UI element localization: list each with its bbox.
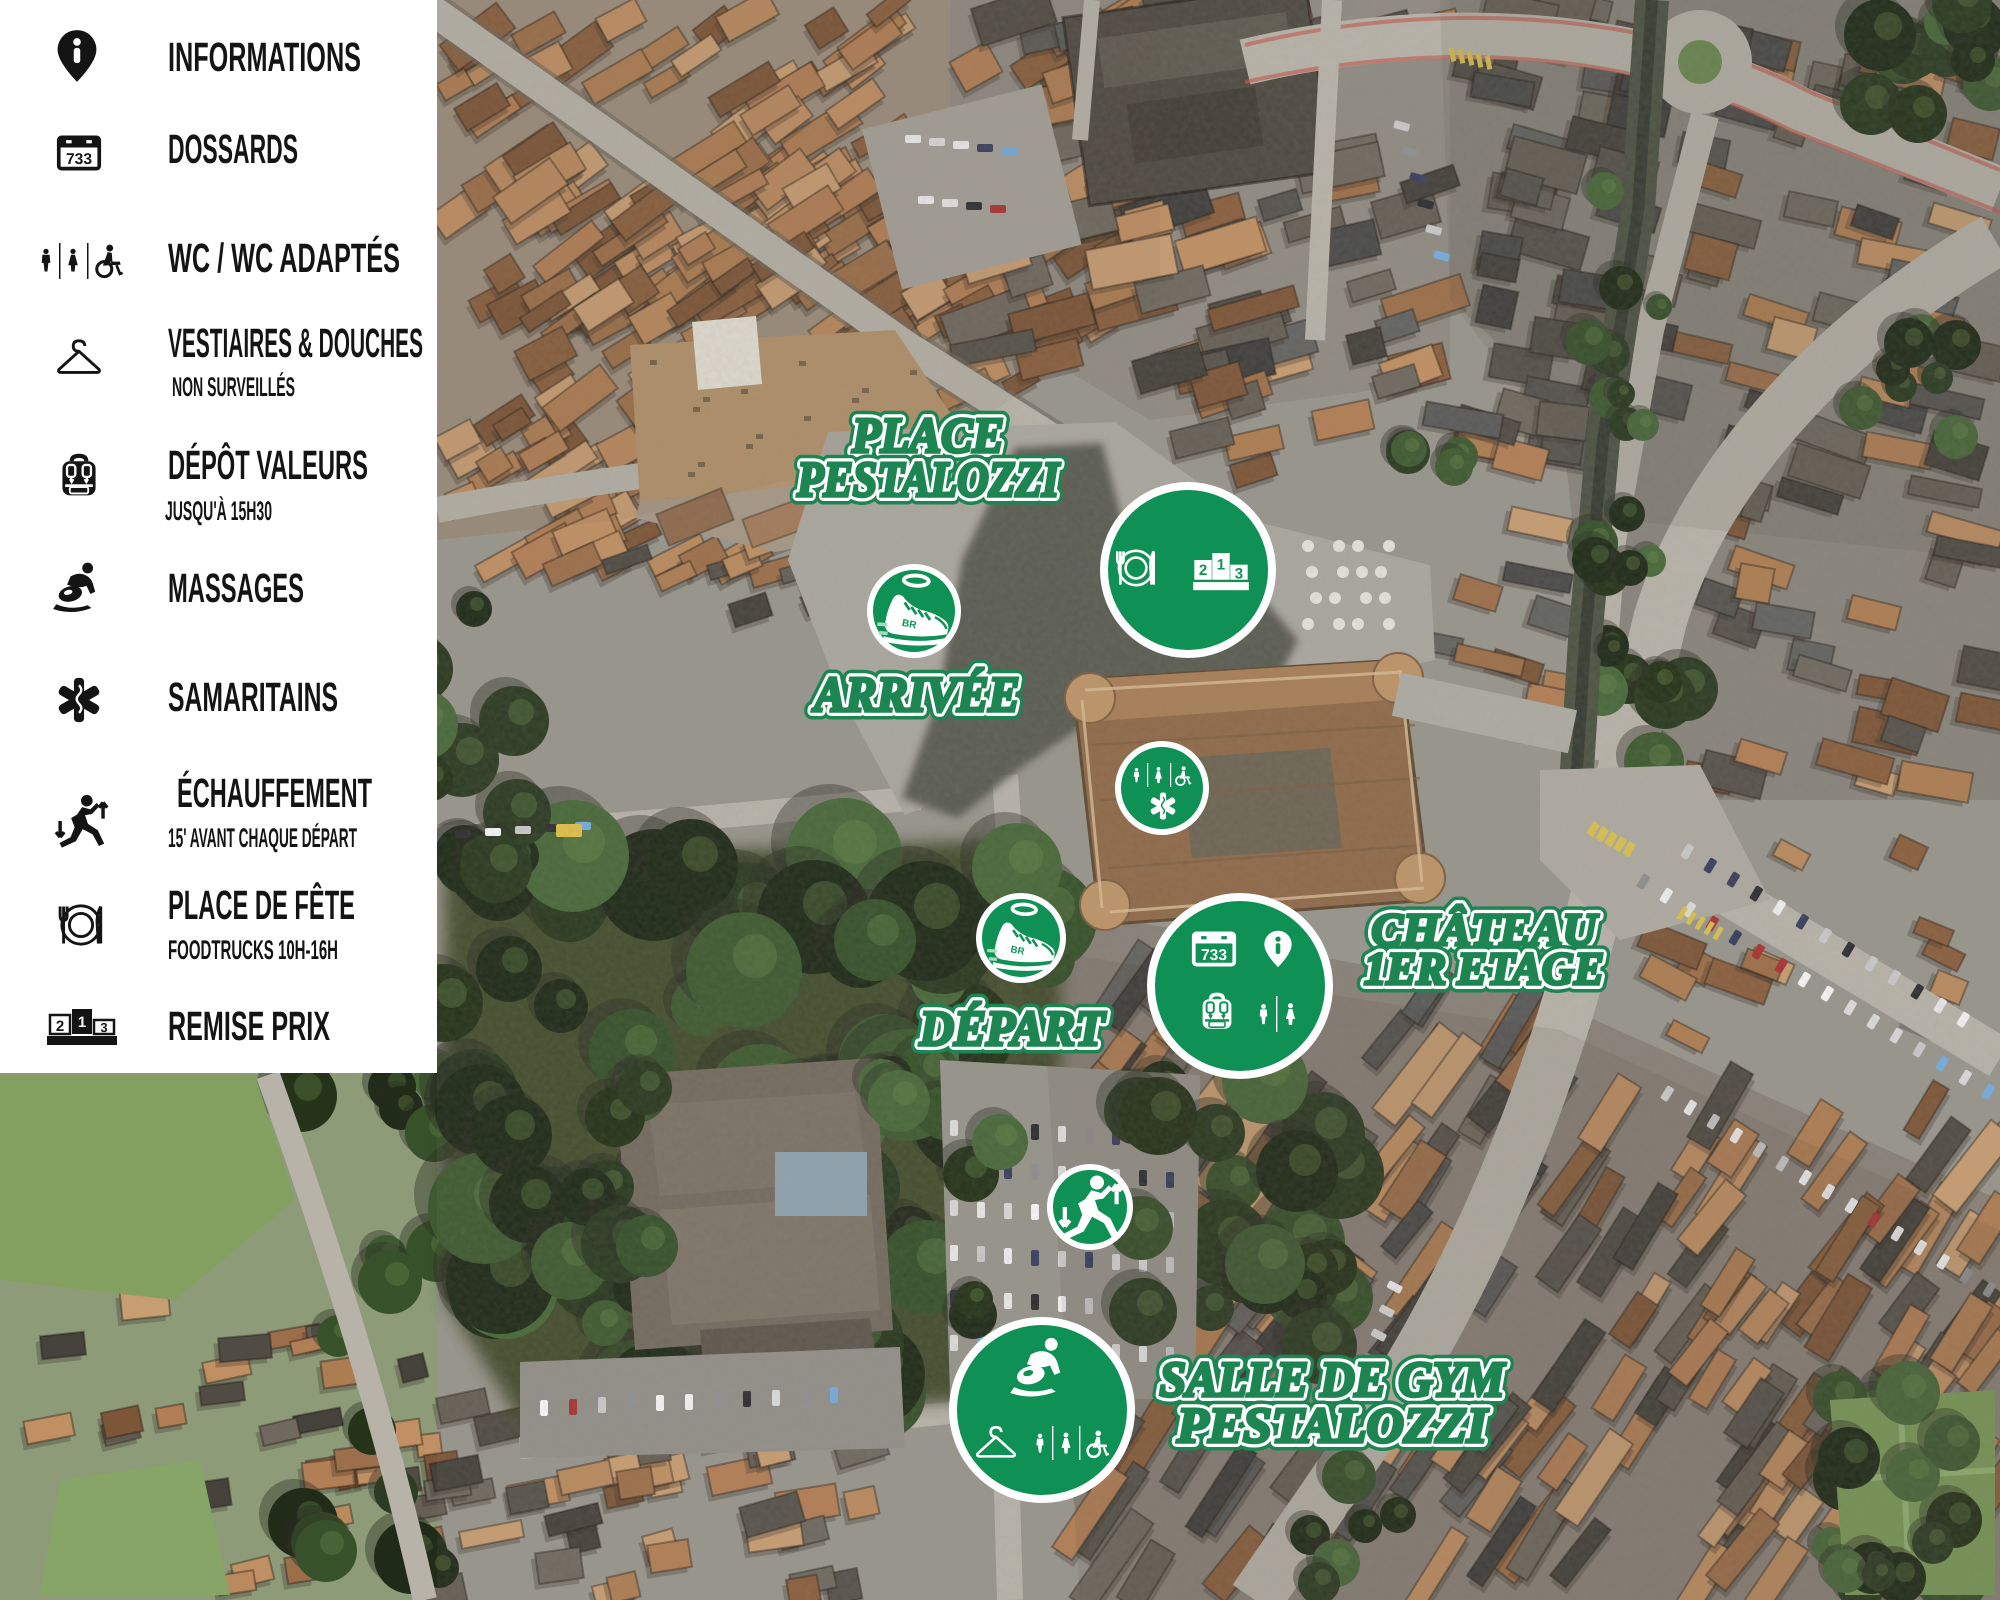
svg-text:VESTIAIRES & DOUCHES: VESTIAIRES & DOUCHES xyxy=(168,320,423,366)
svg-text:15' AVANT CHAQUE DÉPART: 15' AVANT CHAQUE DÉPART xyxy=(168,823,357,853)
svg-text:WC / WC ADAPTÉS: WC / WC ADAPTÉS xyxy=(168,235,400,281)
svg-text:ARRIVÉE: ARRIVÉE xyxy=(812,666,1020,722)
svg-text:DOSSARDS: DOSSARDS xyxy=(168,126,298,172)
svg-text:MASSAGES: MASSAGES xyxy=(168,565,304,611)
svg-text:REMISE PRIX: REMISE PRIX xyxy=(168,1003,330,1049)
svg-text:1: 1 xyxy=(78,1014,86,1031)
svg-text:2: 2 xyxy=(56,1018,64,1035)
svg-text:1ER ETAGE: 1ER ETAGE xyxy=(1364,943,1604,994)
svg-text:SAMARITAINS: SAMARITAINS xyxy=(168,674,338,720)
svg-text:PESTALOZZI: PESTALOZZI xyxy=(796,451,1060,507)
svg-text:INFORMATIONS: INFORMATIONS xyxy=(168,34,361,80)
svg-text:PLACE DE FÊTE: PLACE DE FÊTE xyxy=(168,882,355,928)
svg-text:DÉPÔT VALEURS: DÉPÔT VALEURS xyxy=(168,442,368,488)
svg-text:JUSQU'À 15H30: JUSQU'À 15H30 xyxy=(165,496,272,526)
svg-text:FOODTRUCKS 10H-16H: FOODTRUCKS 10H-16H xyxy=(168,935,338,965)
svg-text:ÉCHAUFFEMENT: ÉCHAUFFEMENT xyxy=(177,770,372,816)
svg-text:NON SURVEILLÉS: NON SURVEILLÉS xyxy=(172,372,295,402)
svg-text:PESTALOZZI: PESTALOZZI xyxy=(1176,1397,1489,1453)
svg-text:DÉPART: DÉPART xyxy=(919,1000,1107,1056)
svg-text:3: 3 xyxy=(100,1020,107,1035)
